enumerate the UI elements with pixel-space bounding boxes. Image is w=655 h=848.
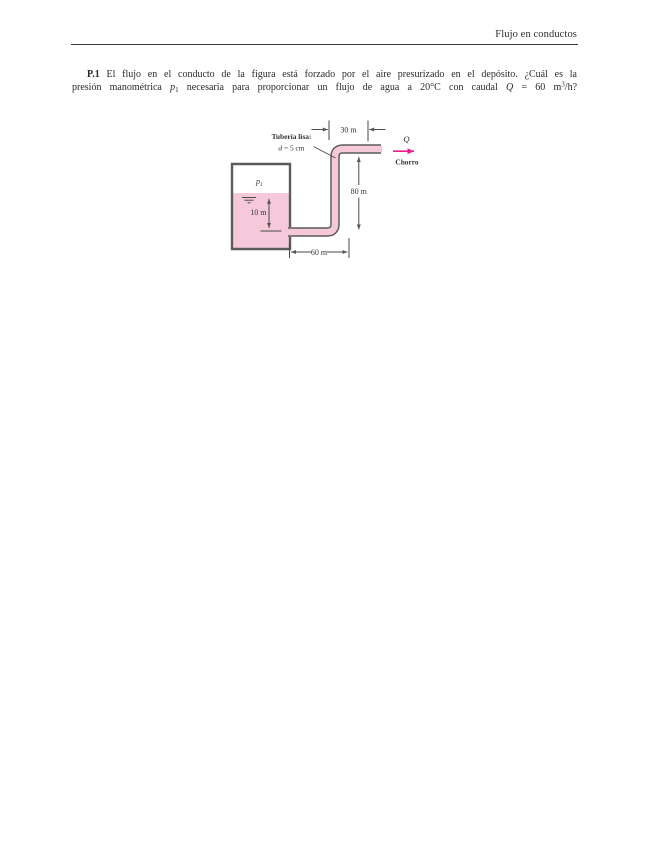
problem-text-2d: /h? <box>565 82 577 93</box>
dimension-80m-label: 80 m <box>351 187 368 196</box>
problem-line-2: presión manométrica p1 necesaria para pr… <box>72 81 577 94</box>
pipe-bore <box>288 149 382 232</box>
problem-line-1: P.1 El flujo en el conducto de la figura… <box>72 68 577 81</box>
dimension-60m-label: 60 m <box>311 248 328 257</box>
document-page: Flujo en conductos P.1 El flujo en el co… <box>0 0 655 848</box>
dimension-10m-label: 10 m <box>250 208 267 217</box>
tank-water <box>233 193 289 248</box>
pipe-diameter-label: d = 5 cm <box>278 144 304 153</box>
pipe-diameter-value: = 5 cm <box>282 144 305 153</box>
running-header: Flujo en conductos <box>72 29 577 40</box>
pipe-type-label: Tubería lisa: <box>272 132 312 141</box>
header-rule <box>71 44 578 45</box>
problem-statement: P.1 El flujo en el conducto de la figura… <box>72 68 577 95</box>
dimension-30m-label: 30 m <box>340 125 357 134</box>
jet-label: Chorro <box>395 158 419 167</box>
problem-number: P.1 <box>87 69 100 80</box>
problem-text-2b: necesaria para proporcionar un flujo de … <box>179 82 506 93</box>
figure-diagram: p1 10 m 30 m 80 m 60 m <box>220 112 450 280</box>
problem-text-2a: presión manométrica <box>72 82 170 93</box>
flow-rate-symbol: Q <box>403 134 409 144</box>
air-pressure-subscript: 1 <box>260 182 263 188</box>
problem-text-2c: = 60 m <box>513 82 561 93</box>
problem-text-1: El flujo en el conducto de la figura est… <box>100 69 577 80</box>
header-title: Flujo en conductos <box>495 29 577 40</box>
